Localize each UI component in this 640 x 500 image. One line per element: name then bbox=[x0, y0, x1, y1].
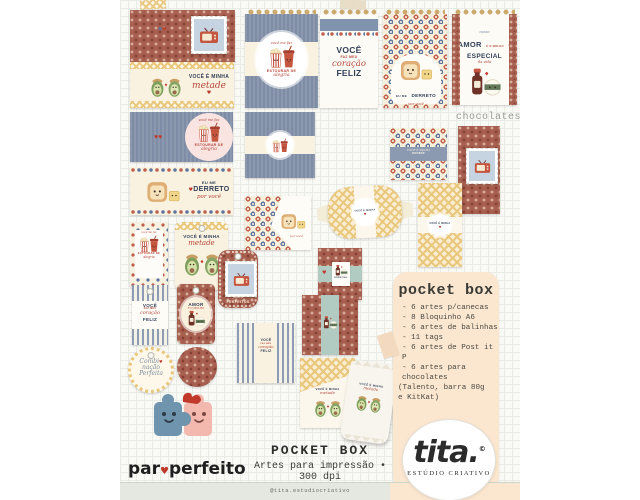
card-stripes-feliz: VOCÊ FAZ MEU coração FELIZ bbox=[237, 323, 295, 383]
toast-butter-icon bbox=[398, 58, 434, 84]
phrase-block: VOCÊ É MINHA metade ♥ bbox=[188, 75, 230, 97]
popcorn-halfdisc-card: ♥♥ você me faz ESTOURAR DE alegria bbox=[130, 112, 233, 162]
avocado-metade-card: VOCÊ É MINHA metade ♥ bbox=[130, 62, 234, 108]
mug-art-stamp-card: ♥♥ bbox=[130, 10, 235, 62]
notebook-popcorn: você me faz ESTOURAR DE alegria bbox=[245, 14, 318, 108]
caption-block: POCKET BOX Artes para impressão • 300 dp… bbox=[250, 443, 390, 483]
notepad-coracao: VOCÊ FAZ MEU coração FELIZ bbox=[320, 14, 378, 108]
phrase-perfeitos: PERFEITOS bbox=[218, 300, 258, 304]
caption-subtitle: Artes para impressão • 300 dpi bbox=[250, 461, 390, 483]
popcorn-soda-icon bbox=[195, 122, 223, 143]
heart-icon: ♥ bbox=[364, 211, 367, 215]
phrase-especial: ESPECIAL bbox=[332, 277, 350, 280]
tag-hole bbox=[198, 225, 205, 232]
phrase-derreto: DERRETO bbox=[411, 93, 435, 98]
notepad-derreto: EU ME DERRETO por você bbox=[383, 14, 447, 108]
tita-logo-badge: tita.© ESTÚDIO CRIATIVO bbox=[402, 419, 496, 500]
panel-item: e KitKat) bbox=[393, 393, 499, 403]
wrapper-kitkat: VOCÊ É MINHA ♥ bbox=[418, 183, 462, 267]
tv-icon bbox=[474, 159, 491, 174]
chain-border bbox=[130, 167, 233, 173]
spiral-binding-icon bbox=[385, 7, 445, 19]
heart-icon: ♥ bbox=[322, 270, 326, 276]
tv-icon bbox=[199, 27, 219, 44]
spiral-binding-icon bbox=[454, 7, 515, 19]
wrapper-chocolate-bar: VOCÊ É MINHA metade bbox=[390, 128, 447, 180]
panel-item: (Talento, barra 80g bbox=[393, 383, 499, 393]
band-label: VOCÊ É MINHA metade bbox=[390, 147, 447, 161]
tag-center: você me faz ESTOURAR DE alegria bbox=[135, 230, 163, 278]
stripe-border bbox=[132, 329, 168, 345]
phrase-derreto: DERRETO bbox=[193, 186, 229, 193]
stamp-icon bbox=[191, 16, 227, 54]
popcorn-soda-icon bbox=[266, 45, 298, 69]
notepad-amor-especial: nosso AMOR É O MOLHO ♥ ESPECIAL da vida bbox=[452, 14, 517, 105]
hearts-icon: ♥♥ bbox=[154, 134, 162, 141]
tag-stripes: VOCÊ FAZ MEU coração FELIZ bbox=[132, 285, 168, 345]
header-band bbox=[320, 19, 378, 31]
sauce-sushi-icon bbox=[467, 67, 503, 97]
tita-wordmark: tita.© bbox=[413, 434, 485, 468]
washi-tape-icon bbox=[140, 0, 166, 10]
popcorn-soda-icon bbox=[137, 235, 161, 253]
phrase-metade: metade bbox=[390, 152, 447, 156]
card-pennant-toast: por você bbox=[245, 196, 311, 250]
tag-hole bbox=[148, 352, 155, 359]
spiral-binding-icon bbox=[322, 7, 376, 19]
caption-title: POCKET BOX bbox=[250, 443, 390, 458]
panel-item: - 6 artes para chocolates bbox=[393, 363, 499, 383]
panel-item: - 6 artes de Post it P bbox=[393, 343, 499, 363]
spiral-binding-icon bbox=[247, 7, 316, 19]
postit-teal-v bbox=[302, 295, 358, 355]
postit-teal-h: ♥ ESPECIAL bbox=[318, 248, 362, 300]
chain-border bbox=[320, 31, 378, 36]
tag-popcorn: você me faz ESTOURAR DE alegria bbox=[130, 222, 168, 286]
heart-icon: ♥ bbox=[160, 466, 169, 477]
phrase-por-voce: por você bbox=[290, 234, 303, 238]
stamp-icon bbox=[466, 148, 498, 184]
sauce-sushi-icon bbox=[334, 264, 348, 277]
phrase-feliz: FELIZ bbox=[256, 350, 276, 354]
par-perfeito-wordmark: par♥perfeito bbox=[128, 459, 238, 479]
toast-derreto-card: EU ME ♥DERRETO por você bbox=[130, 167, 233, 215]
phrase-alegria: alegria bbox=[185, 147, 233, 152]
phrase-block: EU ME ♥DERRETO por você bbox=[188, 181, 230, 200]
chocolates-label: chocolates bbox=[456, 112, 518, 123]
candy-bala-mockup: VOCÊ É MINHA ♥ bbox=[316, 184, 415, 241]
panel-item: - 11 tags bbox=[393, 333, 499, 343]
avocado-couple-icon bbox=[313, 397, 343, 418]
zigzag-border bbox=[130, 101, 234, 108]
tag-hole bbox=[147, 288, 154, 295]
pink-halfdisc: você me faz ESTOURAR DE alegria bbox=[185, 113, 233, 161]
phrase-por-voce: por você bbox=[188, 194, 230, 200]
phrase-alegria: alegria bbox=[273, 73, 289, 78]
phrase-da-vida: da vida bbox=[452, 60, 517, 64]
panel-item: - 6 artes p/canecas bbox=[393, 303, 499, 313]
popcorn-soda-icon bbox=[270, 138, 290, 153]
sauce-sushi-icon bbox=[322, 315, 338, 330]
tv-icon bbox=[233, 272, 250, 287]
phrase-por-voce: por você bbox=[391, 102, 441, 106]
phrase-feliz: FELIZ bbox=[132, 317, 168, 322]
tag-round-combinacao: Combi♥ nação Perfeita bbox=[128, 347, 174, 393]
sauce-sushi-icon bbox=[186, 310, 206, 327]
avocado-couple-icon bbox=[354, 391, 385, 415]
tag-amor-molho: AMOR É O MOLHO bbox=[177, 284, 215, 344]
wrapper-circle-label: VOCÊ É MINHA ♥ bbox=[429, 214, 451, 236]
zigzag-border bbox=[130, 62, 234, 69]
brand-perfeito: perfeito bbox=[169, 459, 246, 479]
candy-body: VOCÊ É MINHA ♥ bbox=[327, 184, 404, 240]
phrase-perfeita: Perfeita bbox=[131, 371, 171, 378]
wrapper-3d-mockup: VOCÊ É MINHA metade bbox=[340, 359, 399, 445]
phrase-metade: metade bbox=[175, 239, 228, 247]
tag-stamp: juntos PERFEITOS bbox=[218, 250, 258, 308]
side-strip bbox=[452, 14, 460, 105]
stamp-icon bbox=[225, 261, 257, 297]
par-perfeito-logo: par♥perfeito bbox=[128, 390, 238, 482]
phrase-amor: AMOR bbox=[458, 40, 482, 49]
crimp-edge bbox=[354, 360, 394, 371]
panel-item: - 6 artes de balinhas bbox=[393, 323, 499, 333]
cover-circle-label: você me faz ESTOURAR DE alegria bbox=[256, 32, 307, 87]
side-strip bbox=[509, 14, 517, 105]
panel-title: pocket box bbox=[397, 282, 495, 299]
tita-subtitle: ESTÚDIO CRIATIVO bbox=[407, 470, 491, 477]
phrase-voce-me-faz: você me faz bbox=[185, 118, 233, 122]
mini-sticker: ESPECIAL bbox=[332, 262, 350, 286]
card-blue-band bbox=[245, 112, 315, 178]
tag-hole bbox=[235, 253, 242, 260]
phrase-especial: ESPECIAL bbox=[452, 53, 517, 60]
panel-item: - 8 Bloquinho A6 bbox=[393, 313, 499, 323]
product-sheet: ♥♥ VOCÊ É MINHA metade ♥ ♥♥ você m bbox=[0, 0, 640, 500]
tag-hole bbox=[193, 287, 200, 294]
mini-hearts-icon: ♥♥ bbox=[158, 26, 166, 33]
puzzle-pieces-icon bbox=[128, 390, 238, 456]
heart-icon: ♥ bbox=[188, 91, 230, 97]
avocado-couple-icon bbox=[146, 74, 186, 98]
chain-border bbox=[130, 209, 233, 215]
phrase-alegria: alegria bbox=[135, 256, 163, 260]
wrapper-talento bbox=[458, 126, 500, 214]
toast-butter-icon bbox=[144, 179, 182, 206]
copyright-mark: © bbox=[479, 445, 485, 453]
brand-par: par bbox=[128, 459, 160, 479]
cover-circle-label bbox=[267, 132, 293, 158]
avocado-couple-icon bbox=[182, 249, 222, 277]
white-blob: EU ME DERRETO por você bbox=[391, 54, 441, 104]
tag-round-pattern bbox=[177, 347, 217, 387]
tag-circle-label: AMOR É O MOLHO bbox=[181, 297, 211, 331]
phrase-e-o-molho: É O MOLHO bbox=[486, 45, 504, 48]
phrase-feliz: FELIZ bbox=[320, 69, 378, 79]
heart-icon: ♥ bbox=[439, 225, 442, 229]
phrase-eu-me: EU ME bbox=[396, 94, 407, 98]
phrase-voce-e-minha: VOCÊ É MINHA bbox=[188, 75, 230, 81]
toast-butter-icon bbox=[279, 212, 307, 232]
grid-board: ♥♥ VOCÊ É MINHA metade ♥ ♥♥ você m bbox=[120, 0, 520, 500]
